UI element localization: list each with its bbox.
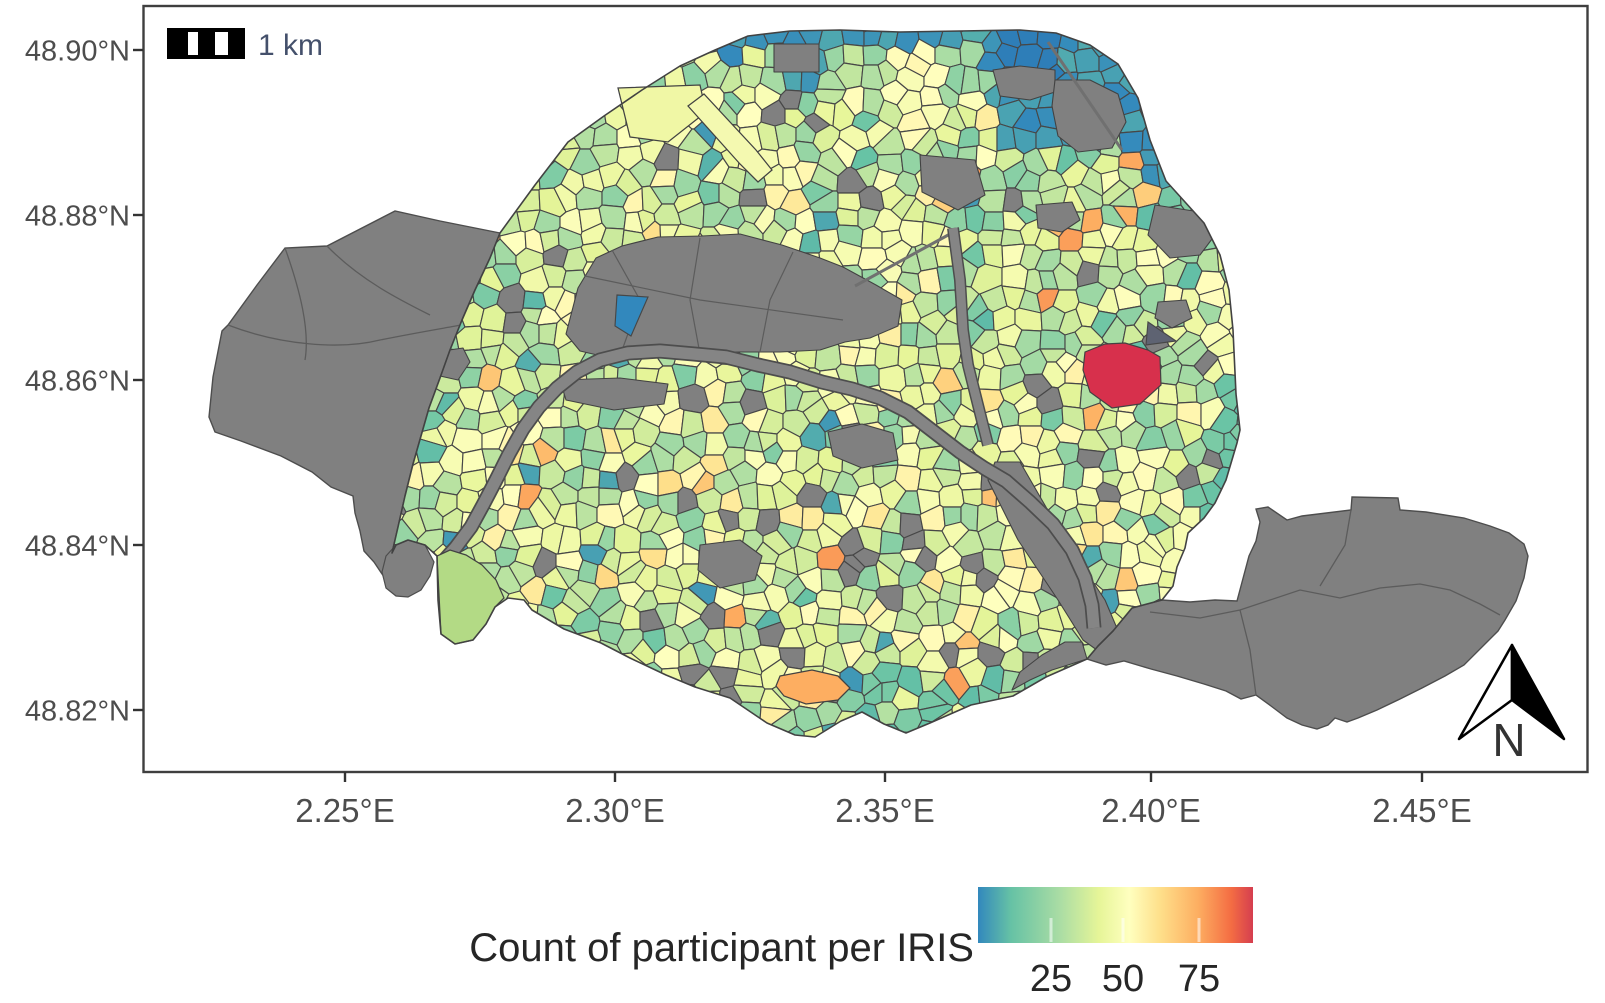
svg-text:25: 25	[1030, 958, 1072, 1000]
svg-text:48.88°N: 48.88°N	[25, 201, 130, 233]
svg-text:75: 75	[1178, 958, 1220, 1000]
svg-text:48.90°N: 48.90°N	[25, 36, 130, 68]
svg-text:2.35°E: 2.35°E	[835, 792, 934, 829]
svg-text:1 km: 1 km	[258, 29, 323, 62]
svg-text:2.30°E: 2.30°E	[565, 792, 664, 829]
svg-text:48.82°N: 48.82°N	[25, 696, 130, 728]
svg-text:48.84°N: 48.84°N	[25, 531, 130, 563]
svg-text:2.45°E: 2.45°E	[1372, 792, 1471, 829]
svg-text:2.40°E: 2.40°E	[1101, 792, 1200, 829]
svg-text:48.86°N: 48.86°N	[25, 366, 130, 398]
svg-text:Count of participant per IRIS: Count of participant per IRIS	[469, 926, 974, 970]
svg-text:N: N	[1492, 714, 1525, 766]
svg-text:2.25°E: 2.25°E	[295, 792, 394, 829]
svg-text:50: 50	[1102, 958, 1144, 1000]
